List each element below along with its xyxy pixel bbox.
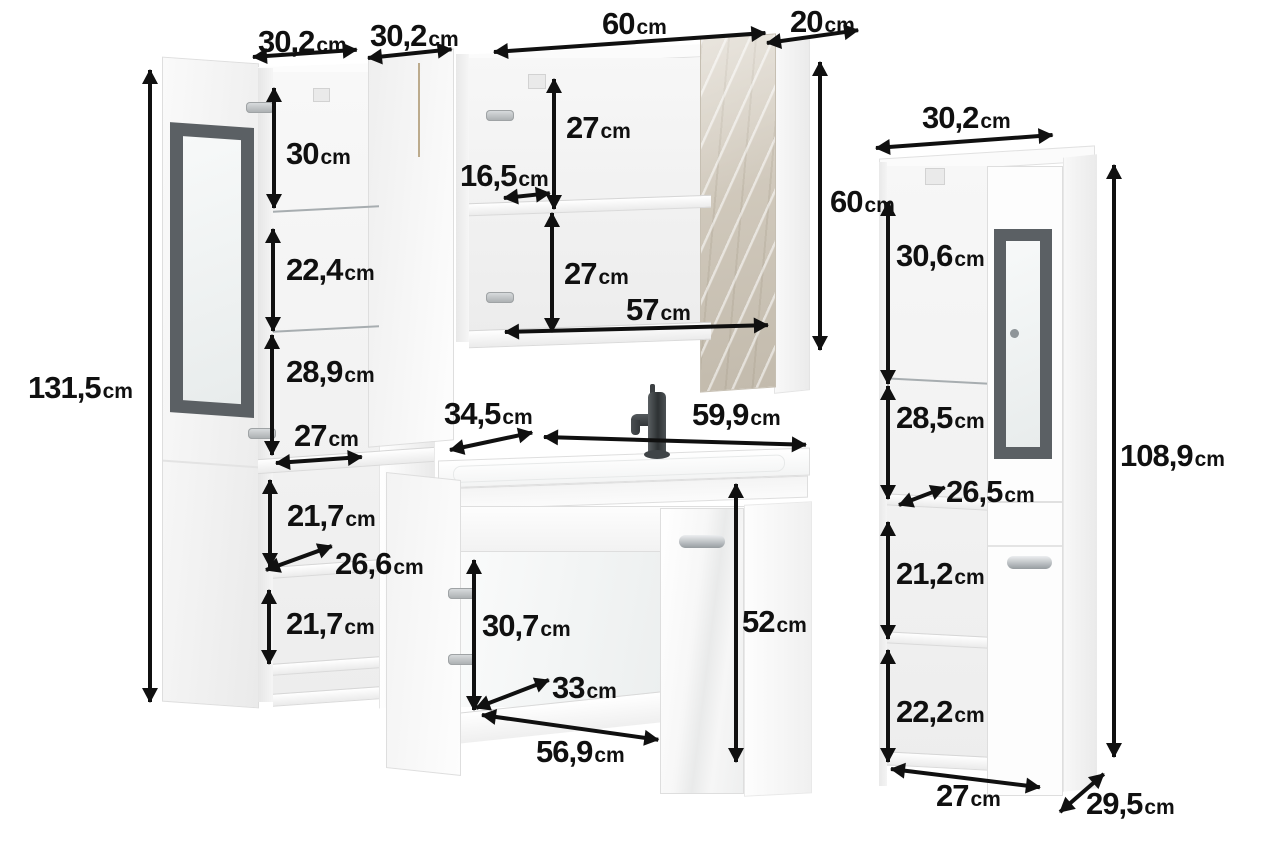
dim-mirror-section-top: 27cm bbox=[566, 112, 631, 143]
dim-mirror-section-bot-arrow bbox=[550, 213, 554, 332]
dim-left-section5-arrow bbox=[267, 590, 271, 664]
dim-left-body-width: 30,2cm bbox=[370, 20, 459, 51]
dim-left-section4-arrow bbox=[268, 480, 272, 567]
dim-left-section2-arrow bbox=[271, 229, 275, 331]
dim-mirror-depth: 20cm bbox=[790, 6, 855, 37]
dim-sink-height: 52cm bbox=[742, 606, 807, 637]
dim-right-section3-arrow bbox=[886, 522, 890, 639]
right-door-seam-2 bbox=[988, 545, 1062, 547]
dim-right-section2: 28,5cm bbox=[896, 402, 985, 433]
dim-left-section1-arrow bbox=[272, 88, 276, 208]
dim-left-height: 131,5cm bbox=[28, 372, 133, 403]
sink-cabinet-left-door bbox=[386, 472, 461, 776]
faucet-post bbox=[648, 392, 666, 454]
mirror-cabinet-marble-door bbox=[700, 33, 776, 392]
dim-sink-basin-width: 59,9cm bbox=[692, 399, 781, 430]
dim-sink-door-height: 30,7cm bbox=[482, 610, 571, 641]
dim-right-inner-depth: 26,5cm bbox=[946, 476, 1035, 507]
sink-cabinet-side-panel bbox=[744, 501, 812, 797]
dim-left-height-arrow bbox=[148, 70, 152, 702]
dim-right-section1: 30,6cm bbox=[896, 240, 985, 271]
sink-basin bbox=[438, 446, 812, 508]
faucet-spout-tip bbox=[631, 420, 640, 435]
left-hinge-plate bbox=[313, 88, 330, 102]
dim-left-inner-width: 27cm bbox=[294, 420, 359, 451]
dim-mirror-section-top-arrow bbox=[552, 79, 556, 209]
left-door-hinge-top bbox=[246, 102, 274, 113]
dim-right-depth: 29,5cm bbox=[1086, 788, 1175, 819]
dim-mirror-width: 60cm bbox=[602, 8, 667, 39]
dim-sink-height-arrow bbox=[734, 484, 738, 762]
mirror-hinge-plate bbox=[528, 74, 546, 89]
mirror-cabinet-left-door bbox=[368, 48, 454, 448]
right-cabinet-handle bbox=[1007, 556, 1052, 569]
right-cabinet-glass-door bbox=[994, 229, 1052, 459]
dim-left-section5: 21,7cm bbox=[286, 608, 375, 639]
dim-mirror-height-arrow bbox=[818, 62, 822, 350]
dim-left-section1: 30cm bbox=[286, 138, 351, 169]
mirror-door-hinge-top bbox=[486, 110, 514, 121]
left-door-glass bbox=[170, 122, 254, 418]
dim-left-section3-arrow bbox=[270, 335, 274, 455]
dim-mirror-shelf-depth: 16,5cm bbox=[460, 160, 549, 191]
sink-door-handle bbox=[679, 535, 725, 548]
dim-sink-inner-width: 56,9cm bbox=[536, 736, 625, 767]
dim-right-section4: 22,2cm bbox=[896, 696, 985, 727]
dim-left-section4: 21,7cm bbox=[287, 500, 376, 531]
dim-left-inner-depth: 26,6cm bbox=[335, 548, 424, 579]
right-door-knob bbox=[1010, 329, 1019, 338]
faucet-base bbox=[644, 450, 670, 459]
dim-sink-basin-depth: 34,5cm bbox=[444, 398, 533, 429]
dim-right-section2-arrow bbox=[886, 386, 890, 499]
dim-left-door-width: 30,2cm bbox=[258, 26, 347, 57]
dim-right-width: 30,2cm bbox=[922, 102, 1011, 133]
dim-mirror-section-bot: 27cm bbox=[564, 258, 629, 289]
dim-left-section2: 22,4cm bbox=[286, 254, 375, 285]
dim-right-section4-arrow bbox=[886, 650, 890, 762]
mirror-door-hinge-bottom bbox=[486, 292, 514, 303]
left-door-seam bbox=[163, 460, 258, 469]
dim-right-width-arrow bbox=[876, 133, 1053, 150]
dim-right-height: 108,9cm bbox=[1120, 440, 1225, 471]
right-cabinet-side-panel bbox=[1063, 154, 1097, 792]
dim-left-section3: 28,9cm bbox=[286, 356, 375, 387]
dim-right-section3: 21,2cm bbox=[896, 558, 985, 589]
dim-mirror-height: 60cm bbox=[830, 186, 895, 217]
furniture-dimension-diagram: 30,2cm 30,2cm 131,5cm 30cm 22,4cm 28,9cm… bbox=[0, 0, 1262, 855]
left-cabinet-door bbox=[162, 57, 259, 709]
right-hinge-plate bbox=[925, 168, 945, 185]
dim-sink-inner-depth: 33cm bbox=[552, 672, 617, 703]
dim-mirror-inner-width: 57cm bbox=[626, 294, 691, 325]
dim-right-inner-width: 27cm bbox=[936, 780, 1001, 811]
dim-right-height-arrow bbox=[1112, 165, 1116, 757]
dim-sink-basin-width-arrow bbox=[544, 435, 806, 447]
mirror-cabinet-left-wall bbox=[456, 54, 469, 342]
mirror-cabinet-side-panel bbox=[774, 38, 810, 394]
panel-gap-highlight bbox=[418, 63, 420, 157]
dim-sink-door-height-arrow bbox=[472, 560, 476, 710]
dim-right-section1-arrow bbox=[886, 202, 890, 384]
